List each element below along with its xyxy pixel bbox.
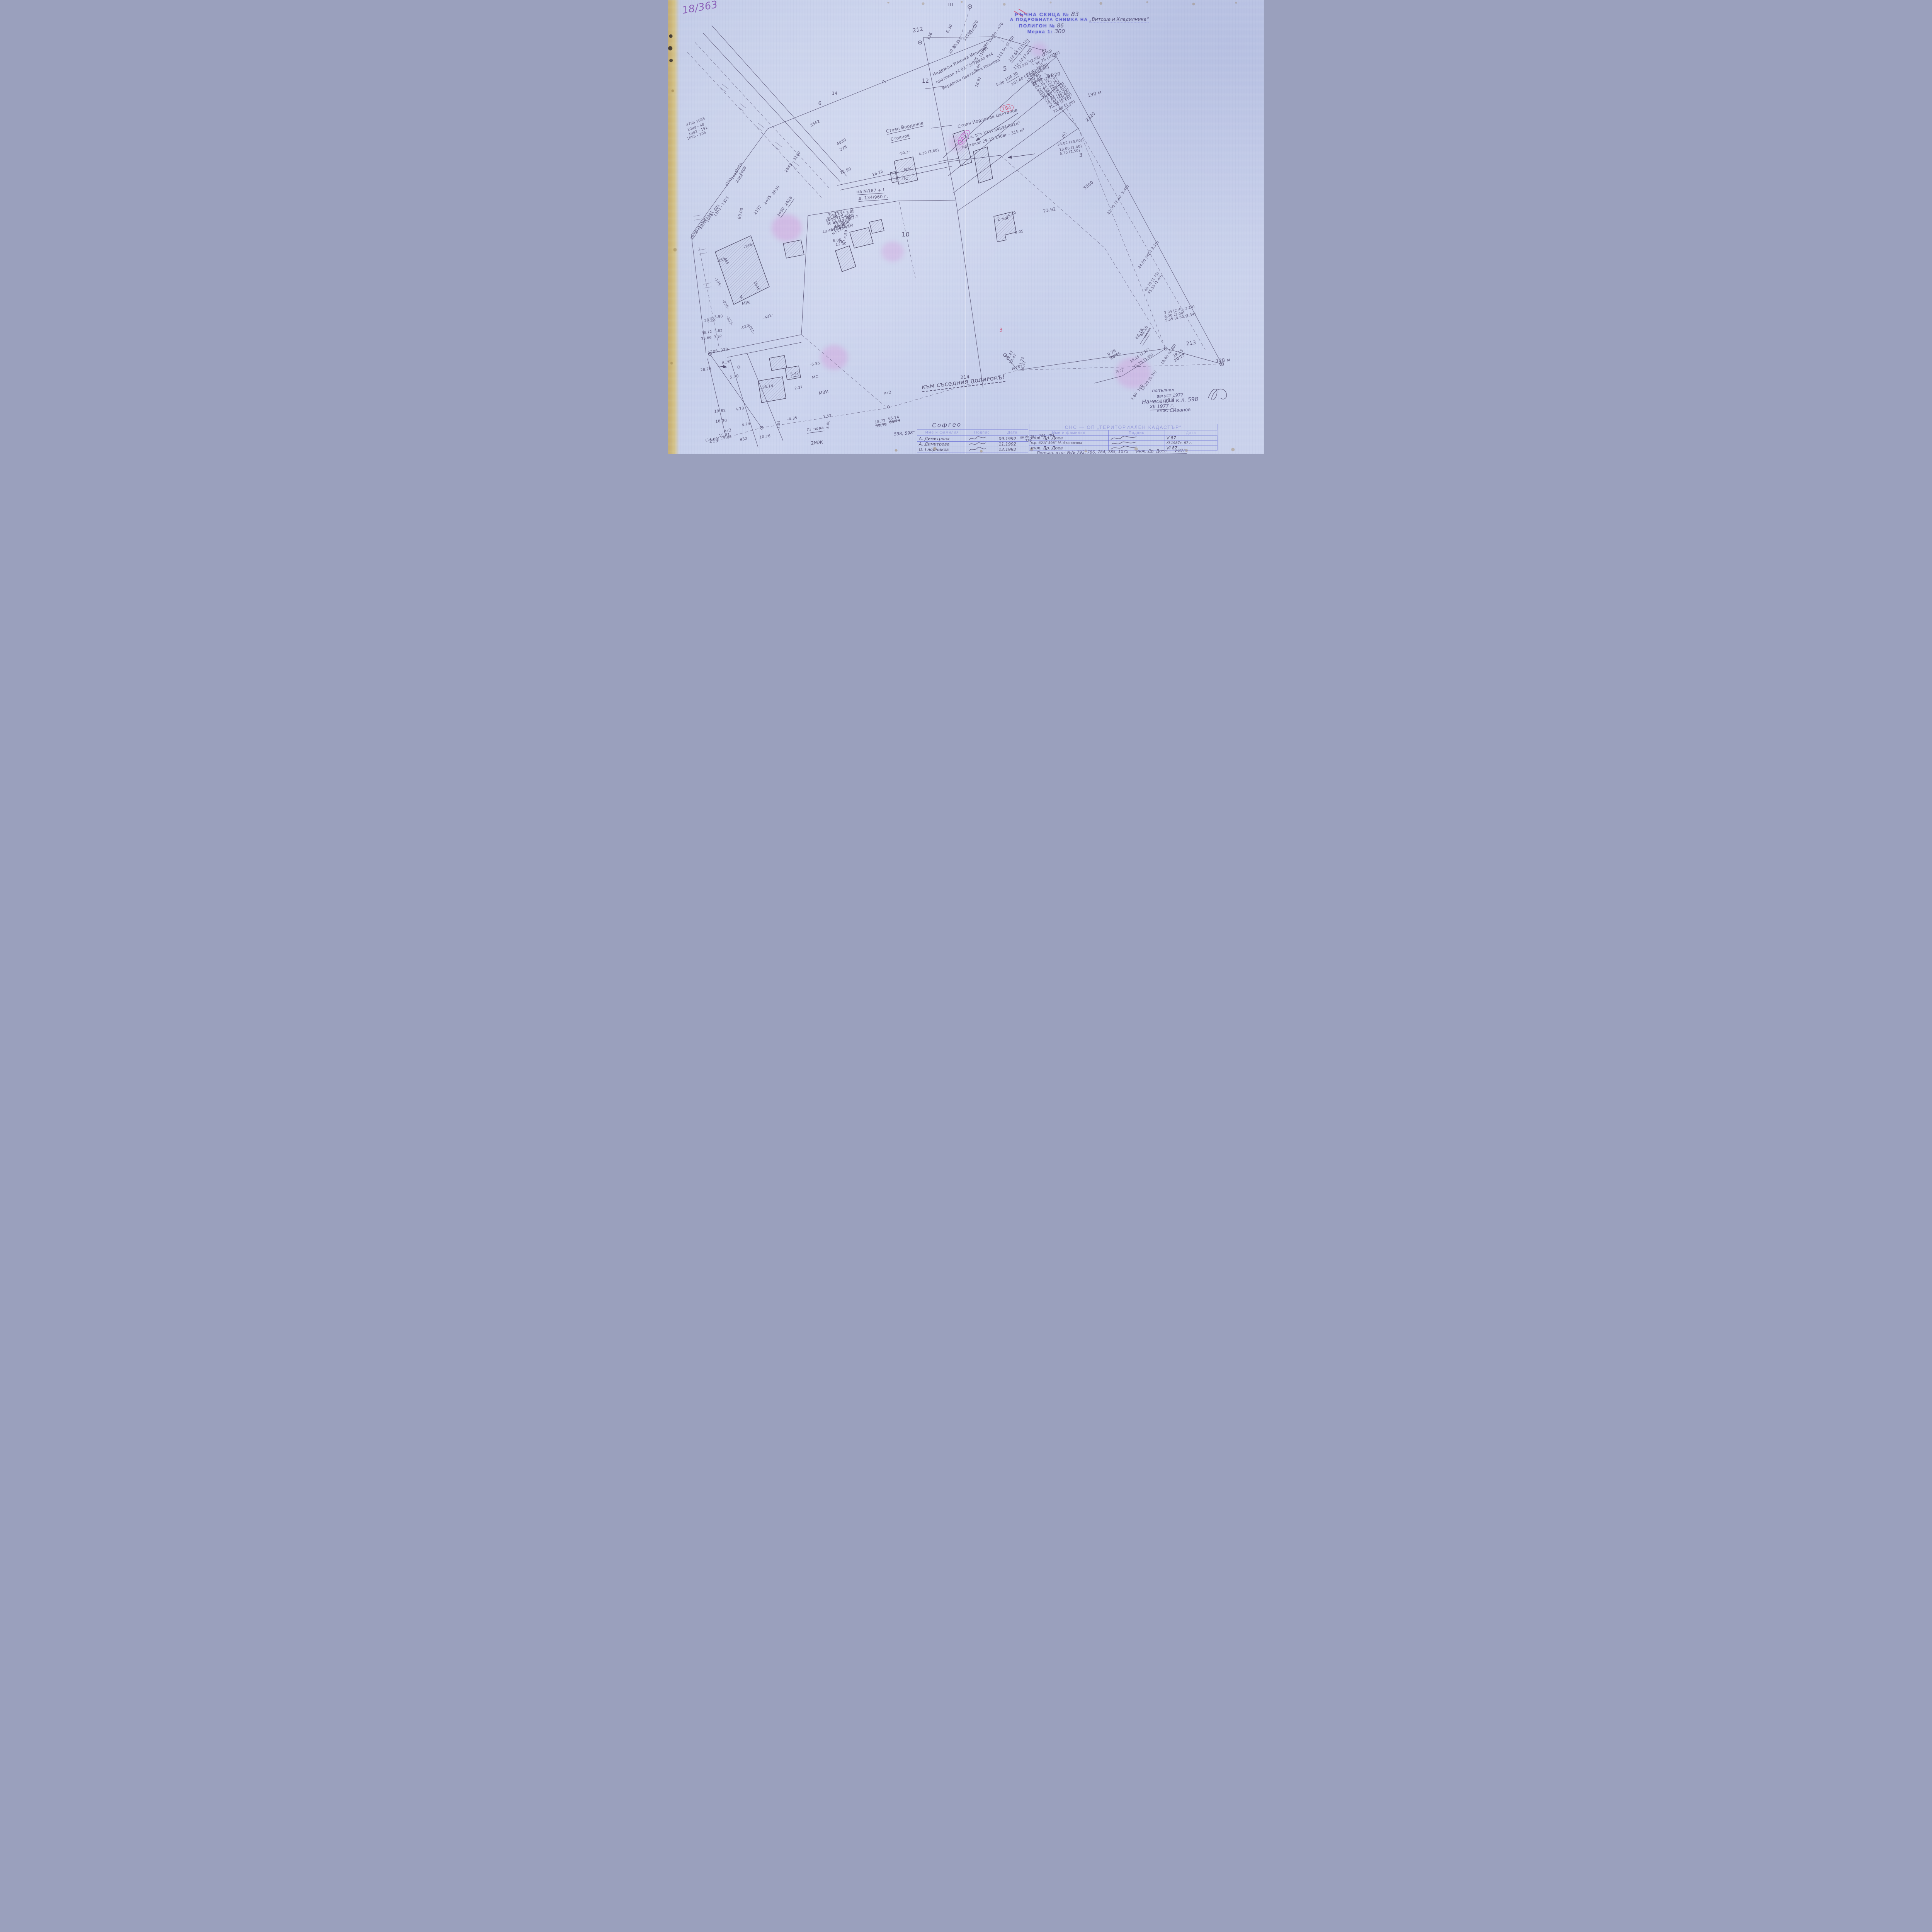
cadastre-title: СНС — ОП „ТЕРИТОРИАЛЕН КАДАСТЪР“ — [1029, 424, 1218, 430]
title-line-3: ПОЛИГОН № 86 — [1019, 23, 1064, 29]
scanned-survey-sketch: 18/363 РЪЧНА СКИЦА № 83 А ПОДРОБНАТА СНИ… — [668, 0, 1264, 454]
signature-cell — [967, 435, 997, 441]
signature-cell — [967, 447, 997, 452]
map-annotation: 2МЖ — [811, 440, 823, 446]
sofgeo-title: Софгео — [932, 421, 962, 429]
cadastre-margin-note: 785 — [1025, 439, 1032, 443]
map-annotation: 12 — [922, 78, 929, 84]
map-annotation: 4.50 — [844, 230, 849, 239]
date-cell: 12.1992 — [997, 447, 1028, 452]
map-annotation: 5 — [1003, 66, 1007, 72]
filled-by-note: попълнил — [1152, 387, 1174, 393]
column-header: Дата — [1165, 430, 1218, 436]
map-annotation: Ш — [948, 2, 953, 7]
map-annotation: 4. — [740, 295, 745, 301]
scale-value: 300 — [1054, 29, 1065, 35]
signature-cell — [967, 441, 997, 447]
engineer-name: к.р. 621Г 598‴ М. Атанасова — [1029, 440, 1109, 446]
title-line-2: А ПОДРОБНАТА СНИМКА НА „Витоша и Хладилн… — [1010, 17, 1149, 22]
surveyor-name: А. Димитрова — [917, 435, 967, 441]
cadastre-table: СНС — ОП „ТЕРИТОРИАЛЕН КАДАСТЪР“ Име и ф… — [1029, 424, 1217, 450]
title-label: ПОЛИГОН № — [1019, 23, 1055, 29]
map-annotation: 10 — [901, 231, 910, 238]
title-label: А ПОДРОБНАТА СНИМКА НА — [1010, 17, 1088, 22]
surveyor-name: О. Глодников — [917, 447, 967, 452]
map-annotation: 3 — [999, 328, 1003, 333]
map-annotation: 3 — [1079, 153, 1083, 158]
date-cell: 11.1992 — [997, 441, 1028, 447]
date-cell: XI 1987г. 87 г. — [1165, 440, 1218, 446]
surveyor-name: А. Димитрова — [917, 441, 967, 447]
column-header: Подпис — [967, 429, 997, 436]
map-annotation: ПС — [902, 177, 908, 181]
title-label: Мерка 1: — [1027, 29, 1053, 34]
date-cell: V 87 — [1165, 435, 1218, 441]
column-header: Име и фамилия — [917, 429, 967, 436]
locality-name: „Витоша и Хладилника“ — [1089, 17, 1149, 22]
map-annotation: 14 — [832, 91, 838, 96]
title-line-4: Мерка 1: 300 — [1027, 29, 1065, 35]
map-annotation: 6 — [818, 101, 822, 107]
map-annotation: 213 — [1186, 340, 1196, 347]
sofgeo-table: Име и фамилия Подпис Дата А. Димитрова 0… — [917, 430, 1028, 452]
column-header: Дата — [997, 429, 1028, 436]
